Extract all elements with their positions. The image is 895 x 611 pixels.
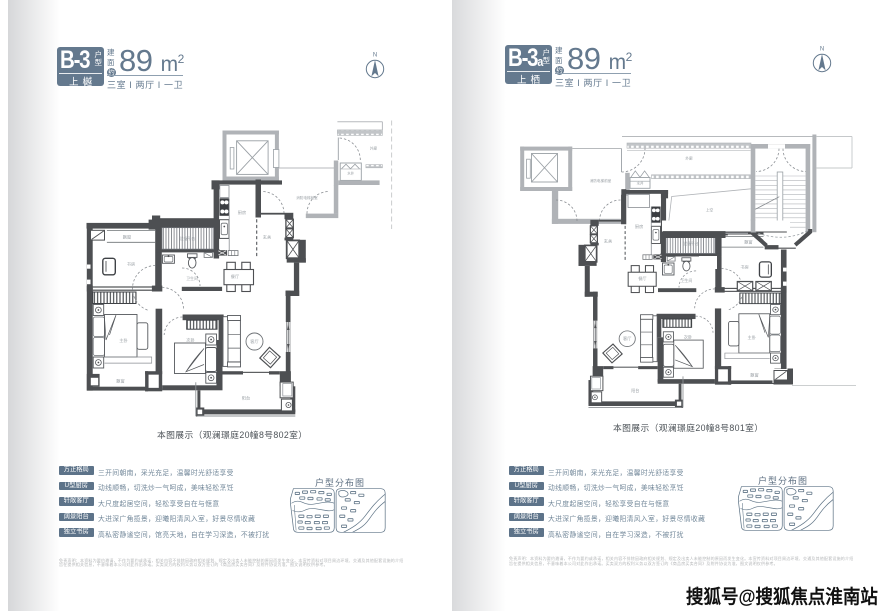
svg-text:玄关: 玄关 (604, 238, 612, 245)
svg-text:客厅: 客厅 (623, 335, 631, 342)
svg-text:上空: 上空 (706, 208, 714, 213)
svg-text:次卧: 次卧 (684, 334, 692, 341)
svg-text:设备平台: 设备平台 (180, 236, 195, 241)
svg-text:水井: 水井 (347, 171, 354, 176)
svg-text:厨房: 厨房 (635, 223, 643, 230)
svg-text:厨房: 厨房 (238, 209, 246, 216)
svg-text:消防电梯前室: 消防电梯前室 (590, 178, 612, 183)
svg-text:设备平台: 设备平台 (683, 241, 698, 246)
svg-text:外廊: 外廊 (685, 156, 693, 161)
svg-text:次卧: 次卧 (186, 337, 194, 344)
svg-text:主卧: 主卧 (119, 337, 127, 344)
svg-text:卫生间: 卫生间 (681, 278, 693, 283)
svg-text:飘窗: 飘窗 (750, 372, 758, 379)
svg-text:餐厅: 餐厅 (638, 275, 646, 282)
svg-text:阳台: 阳台 (242, 395, 250, 402)
svg-text:阳台: 阳台 (631, 387, 639, 394)
svg-text:水井: 水井 (637, 181, 644, 186)
svg-text:书房: 书房 (740, 264, 748, 271)
svg-text:飘窗: 飘窗 (744, 239, 752, 246)
svg-text:卫生间: 卫生间 (186, 276, 198, 281)
svg-text:玄关: 玄关 (263, 234, 271, 241)
svg-text:飘窗: 飘窗 (123, 234, 131, 241)
svg-text:主卧: 主卧 (748, 334, 756, 341)
svg-text:餐厅: 餐厅 (231, 273, 239, 280)
svg-text:书房: 书房 (127, 261, 135, 268)
svg-text:外廊: 外廊 (370, 146, 378, 151)
svg-text:客厅: 客厅 (250, 338, 258, 345)
svg-text:飘窗: 飘窗 (116, 378, 124, 385)
svg-text:消防电梯前室: 消防电梯前室 (296, 195, 318, 200)
